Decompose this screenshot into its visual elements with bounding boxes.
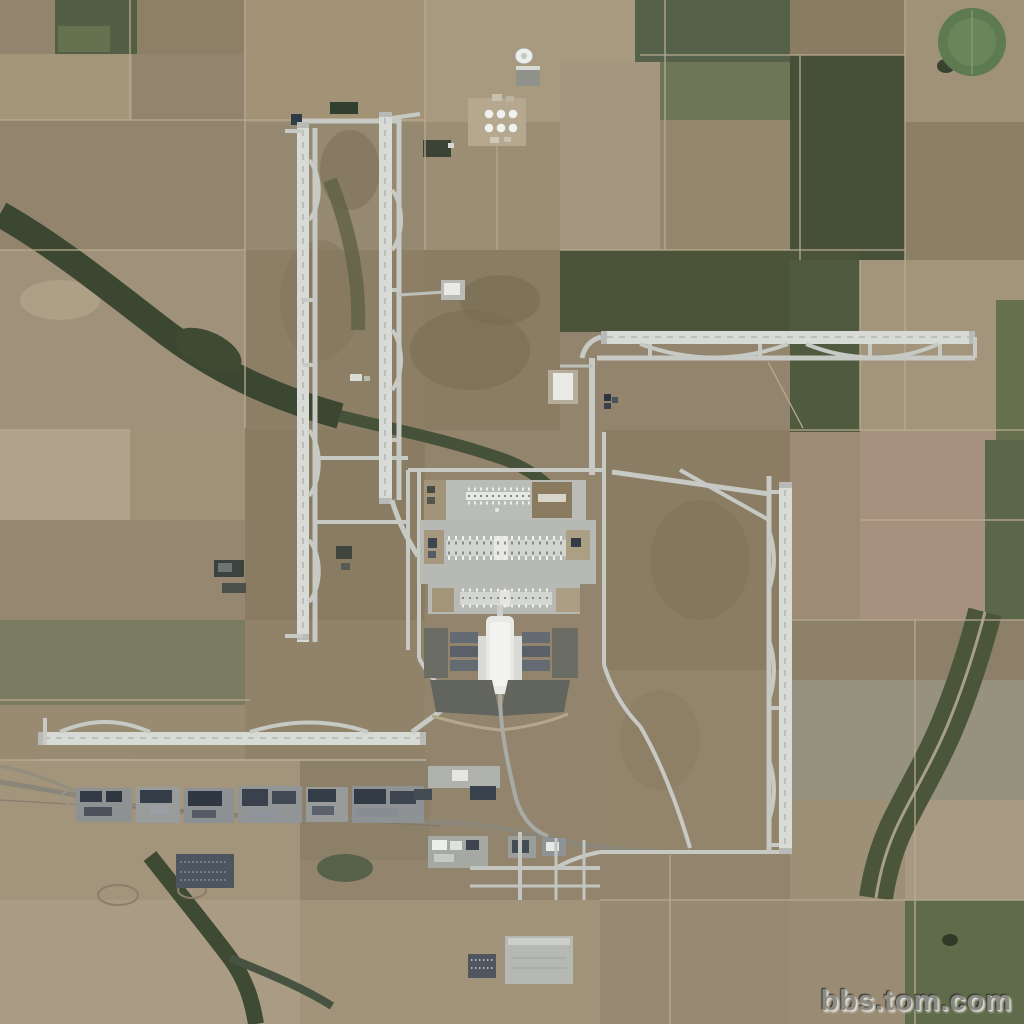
warehouse (312, 806, 334, 815)
runway-southeast (779, 482, 792, 854)
fields (620, 690, 700, 790)
small-building (364, 376, 370, 381)
north-facilities (521, 53, 527, 59)
aprons-concourses (538, 494, 566, 502)
watermark: bbs.tom.com (821, 985, 1012, 1018)
airfield-pavement (779, 482, 792, 488)
warehouse (242, 789, 268, 806)
small-building (604, 394, 611, 401)
aprons-concourses (427, 497, 435, 504)
airfield-pavement (379, 112, 392, 117)
fields (650, 500, 750, 620)
maintenance-building (508, 938, 570, 945)
fuel-tank (497, 110, 506, 119)
fields (790, 0, 905, 55)
hangar (470, 786, 496, 800)
fields (0, 620, 250, 705)
fields (790, 432, 860, 620)
control-tower (495, 508, 499, 512)
fuel-tank (485, 110, 494, 119)
fields (985, 440, 1024, 620)
vegetation (317, 854, 373, 882)
airfield-pavement (420, 732, 426, 745)
fields (600, 900, 790, 1024)
service-building (434, 854, 454, 862)
parking-lot (424, 628, 448, 678)
terminal-landside (478, 636, 486, 680)
fields (460, 275, 540, 325)
fields (137, 0, 245, 54)
satellite-screenshot: bbs.tom.com (0, 0, 1024, 1024)
vegetation (58, 26, 110, 52)
fuel-tank (509, 124, 518, 133)
warehouse (222, 583, 246, 593)
facility-building (336, 546, 352, 559)
warehouse (84, 807, 112, 816)
parking-garage-east (522, 632, 550, 643)
airfield-pavement (297, 122, 309, 128)
fields (635, 0, 790, 62)
fuel-tank (485, 124, 494, 133)
service-building (466, 840, 479, 850)
small-building (604, 403, 611, 409)
fields (905, 122, 1024, 260)
service-building (432, 840, 447, 850)
aprons-concourses (432, 588, 454, 612)
fields (905, 800, 1024, 900)
warehouse (140, 790, 172, 803)
warehouse (390, 791, 416, 804)
aprons-concourses (427, 486, 435, 493)
north-facilities (448, 143, 454, 148)
aprons-concourses (428, 551, 436, 558)
fields (0, 430, 130, 520)
airfield-pavement (779, 848, 792, 854)
fields (0, 54, 132, 120)
aprons-concourses (428, 538, 437, 548)
terminal-tent-roof (490, 622, 510, 686)
warehouse (356, 808, 398, 817)
warehouse (106, 791, 122, 802)
layer-aprons-concourses (420, 480, 596, 629)
warehouse (272, 791, 296, 804)
parking-lot-west (176, 854, 234, 888)
parking-lot (552, 628, 578, 678)
warehouse (246, 810, 278, 818)
fuel-tank (509, 110, 518, 119)
parking-lot (468, 954, 496, 978)
airfield-pavement (601, 331, 607, 344)
fields (660, 120, 790, 260)
fields (0, 760, 300, 900)
fields (790, 55, 905, 260)
parking-garage-east (522, 646, 550, 657)
aprons-concourses (571, 538, 581, 547)
aprons-concourses (556, 588, 580, 612)
north-facilities (492, 94, 502, 101)
warehouse (192, 810, 216, 818)
service-building (444, 283, 460, 295)
satellite-map-of-airport (0, 0, 1024, 1024)
warehouse (80, 791, 102, 802)
warehouse (308, 789, 336, 802)
fields (320, 130, 380, 210)
concourse-b (446, 540, 584, 556)
small-building (350, 374, 362, 381)
parking-garage-east (522, 660, 550, 671)
warehouse (354, 789, 386, 804)
north-facilities (506, 96, 514, 102)
west-facilities (218, 563, 232, 572)
north-facilities (516, 66, 540, 70)
vegetation (330, 102, 358, 114)
fields (790, 260, 860, 432)
parking-garage-west (450, 646, 478, 657)
parking-garage-west (450, 660, 478, 671)
small-building (612, 397, 618, 403)
fields (560, 60, 665, 250)
north-facilities (490, 137, 499, 143)
parking-garage-west (450, 632, 478, 643)
fuel-tank (497, 124, 506, 133)
parking-lot (430, 680, 500, 716)
dark-pond (423, 140, 451, 157)
fields (660, 62, 790, 120)
pond (942, 934, 958, 946)
north-facilities (504, 137, 511, 142)
warehouse (188, 791, 222, 806)
parking-lot (500, 680, 570, 716)
warehouse (414, 789, 432, 800)
facility-building (553, 373, 573, 400)
service-building (450, 841, 462, 850)
fields (0, 520, 250, 620)
terminal-landside (514, 636, 522, 680)
fields (130, 430, 250, 520)
warehouse (150, 806, 168, 814)
hangar (452, 770, 468, 781)
west-facilities (341, 563, 350, 570)
